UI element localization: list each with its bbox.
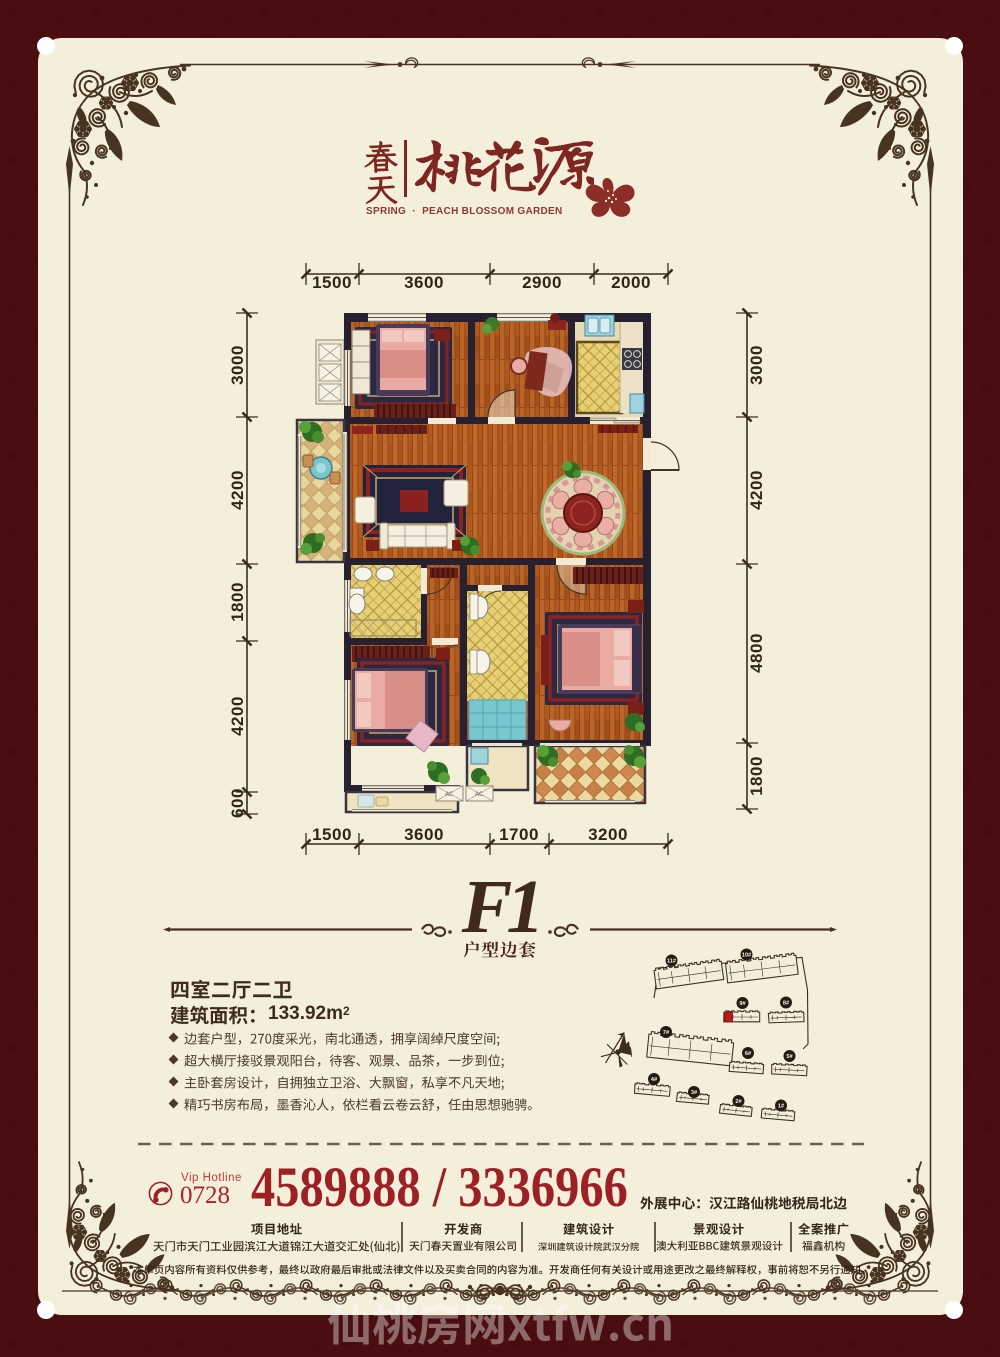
svg-text:10#: 10# [742,953,752,959]
svg-text:6#: 6# [745,1051,752,1057]
svg-text:AC: AC [475,792,484,798]
svg-text:11#: 11# [667,959,677,965]
svg-text:5#: 5# [786,1054,793,1060]
svg-text:9#: 9# [739,1001,746,1007]
svg-text:1#: 1# [778,1104,785,1110]
svg-text:3#: 3# [691,1090,698,1096]
svg-text:8#: 8# [783,1001,790,1007]
svg-text:7#: 7# [663,1030,670,1036]
svg-text:2#: 2# [735,1099,742,1105]
svg-text:4#: 4# [651,1077,658,1083]
svg-text:AC: AC [445,792,454,798]
